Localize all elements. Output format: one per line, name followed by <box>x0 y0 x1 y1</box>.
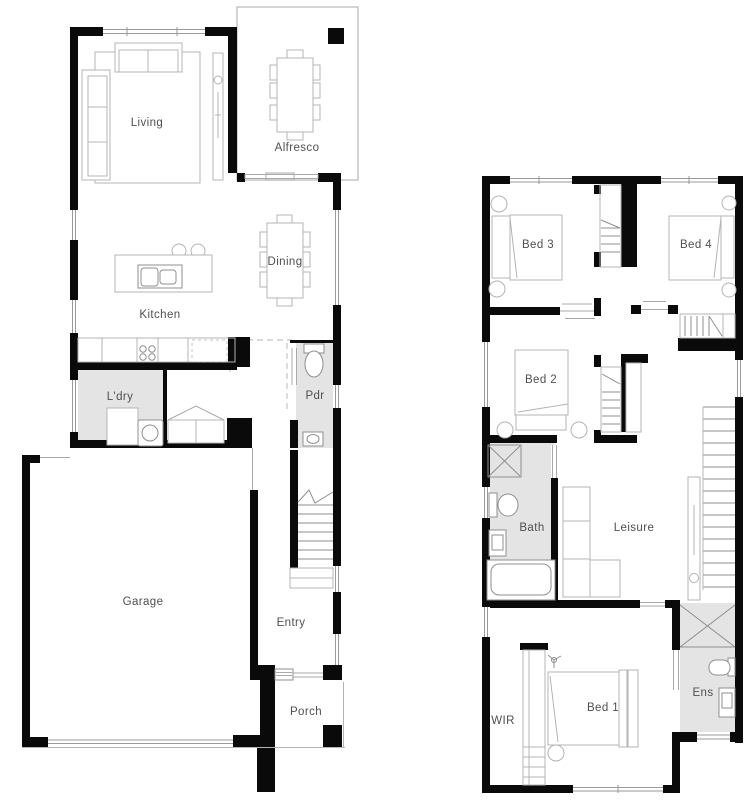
stair-break-line <box>298 490 333 503</box>
bed1-window-bottom <box>573 785 663 793</box>
room-label-laundry: L'dry <box>107 391 134 403</box>
room-label-bed4: Bed 4 <box>680 239 712 251</box>
room-label-bath: Bath <box>519 522 544 534</box>
front-door <box>275 669 323 680</box>
entry-sidelight <box>333 634 341 665</box>
kitchen-window-left <box>70 300 78 333</box>
floor-plan-drawing: LivingAlfrescoDiningKitchenL'dryPdrGarag… <box>0 0 751 804</box>
toilet-cistern <box>489 493 497 517</box>
toilet-bowl <box>709 660 730 675</box>
room-label-wir: WIR <box>491 715 515 727</box>
living-sofa <box>82 43 182 180</box>
alfresco-column <box>328 28 344 44</box>
alfresco-sliding-door <box>245 173 318 180</box>
room-label-ens: Ens <box>692 687 713 699</box>
leisure-sofa <box>563 487 620 597</box>
ceiling-fan-icon <box>548 655 561 668</box>
powder-window-right <box>333 385 341 408</box>
bath-door <box>551 445 558 478</box>
garage-door <box>48 740 233 744</box>
wir-window-left <box>482 607 490 637</box>
upper-staircase <box>688 407 735 600</box>
bed4-robe <box>680 314 735 338</box>
laundry-window-left <box>70 380 78 432</box>
ensuite-door <box>672 650 680 690</box>
hall-linen <box>601 363 641 432</box>
toilet-bowl <box>498 494 518 516</box>
room-label-living: Living <box>131 117 163 129</box>
bedside-table <box>548 745 564 761</box>
bathtub <box>487 560 555 600</box>
powder-door <box>292 348 297 385</box>
stairwell-wall <box>621 178 637 267</box>
room-label-dining: Dining <box>267 256 302 268</box>
ground-floor: LivingAlfrescoDiningKitchenL'dryPdrGarag… <box>22 7 358 792</box>
bed2-window-left <box>482 342 490 407</box>
room-label-powder: Pdr <box>305 390 324 402</box>
living-window-top <box>103 27 205 36</box>
fridge-space <box>192 340 227 362</box>
stair-window-right <box>333 566 341 592</box>
ensuite-vanity <box>719 688 735 717</box>
bed1-zone-door <box>640 600 665 608</box>
bed3-robe <box>600 185 621 267</box>
wir-robe <box>523 650 545 785</box>
room-label-bed3: Bed 3 <box>522 239 554 251</box>
room-label-bed1: Bed 1 <box>587 702 619 714</box>
room-label-leisure: Leisure <box>614 522 655 534</box>
room-label-entry: Entry <box>277 617 306 629</box>
dining-window-right <box>333 210 341 305</box>
kitchen-bench <box>78 338 235 362</box>
bed2-bed <box>497 350 587 438</box>
room-label-kitchen: Kitchen <box>139 309 180 321</box>
room-label-porch: Porch <box>290 706 322 718</box>
tv-unit <box>213 53 223 180</box>
porch-pier <box>323 725 342 747</box>
room-label-bed2: Bed 2 <box>525 374 557 386</box>
bed4-slider-door <box>641 302 668 315</box>
room-label-garage: Garage <box>123 596 164 608</box>
boundary-fence <box>257 747 275 792</box>
floor-plan-page: LivingAlfrescoDiningKitchenL'dryPdrGarag… <box>0 0 751 804</box>
bifold-door <box>168 406 224 420</box>
bed3-slider-door <box>560 304 594 315</box>
stair-window-right <box>735 360 743 397</box>
bed4-window-top <box>661 176 718 184</box>
room-label-alfresco: Alfresco <box>275 142 320 154</box>
island-bench <box>115 244 212 292</box>
living-window-left <box>70 210 78 240</box>
toilet-bowl <box>305 351 323 377</box>
upper-floor: Bed 3Bed 4Bed 2BathLeisureWIRBed 1Ens <box>482 176 743 793</box>
alfresco-table <box>270 50 320 140</box>
bed3-window-top <box>510 176 572 184</box>
ensuite-window-bottom <box>697 732 730 742</box>
